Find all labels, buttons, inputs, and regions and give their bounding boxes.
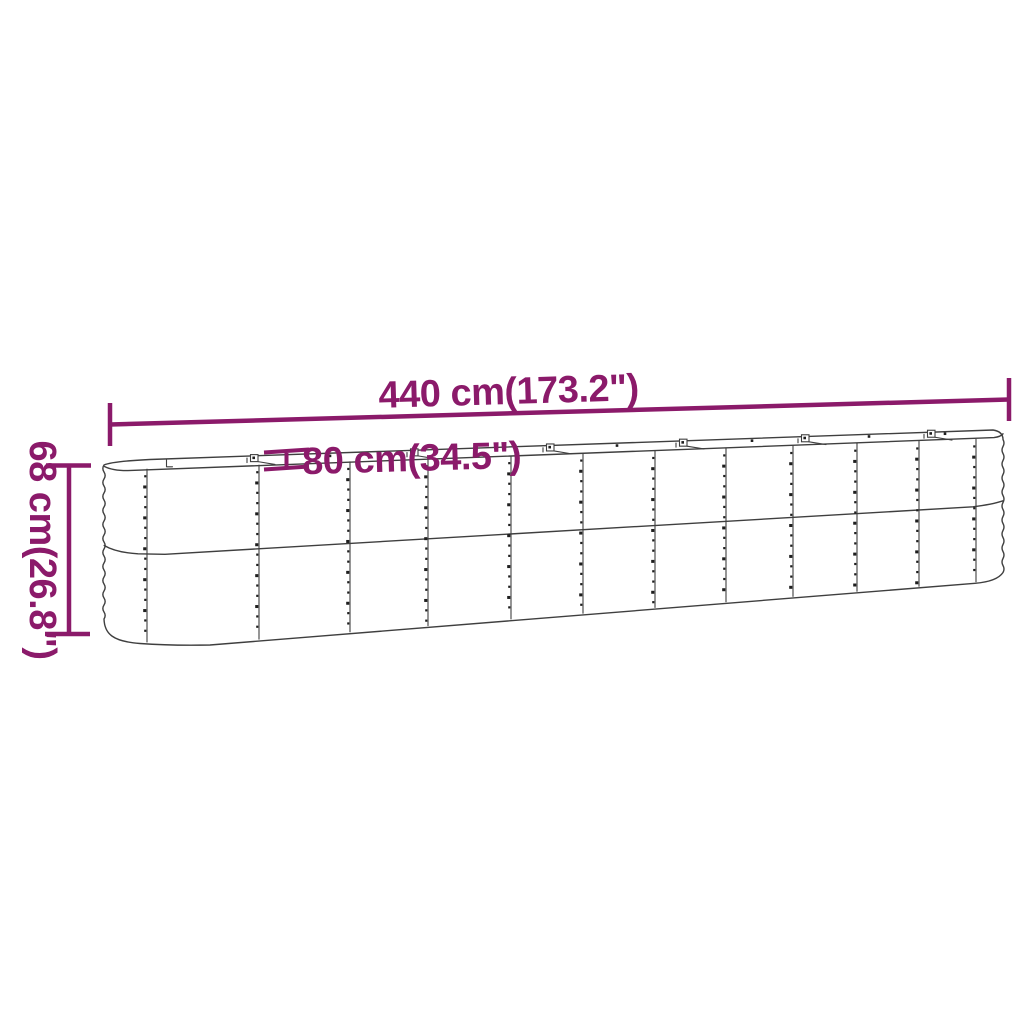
- depth-dimension-label: 80 cm(34.5"): [302, 435, 522, 483]
- planter-drawing: [103, 430, 1004, 645]
- product-dimension-image: 440 cm(173.2") 80 cm(34.5") 68 cm(26.8"): [0, 0, 1024, 1024]
- depth-dimension: 80 cm(34.5"): [264, 435, 522, 483]
- height-dimension: 68 cm(26.8"): [21, 440, 91, 659]
- planter-outline: [103, 430, 1004, 645]
- height-dimension-label: 68 cm(26.8"): [21, 440, 63, 659]
- planter-dimension-diagram: 440 cm(173.2") 80 cm(34.5") 68 cm(26.8"): [0, 0, 1024, 1024]
- length-dimension-label: 440 cm(173.2"): [378, 367, 639, 417]
